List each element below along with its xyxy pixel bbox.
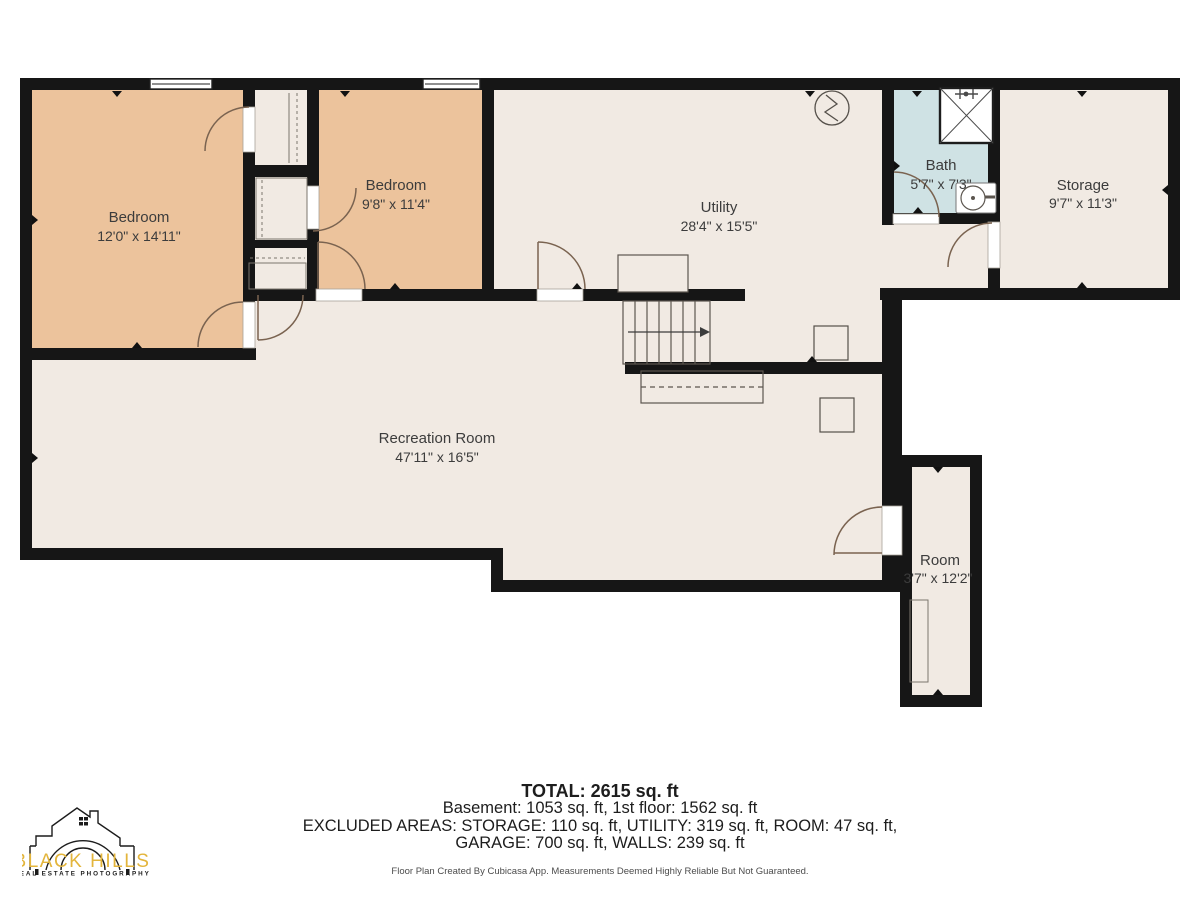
wall-right [1168, 78, 1180, 300]
wall-bath-left [882, 90, 894, 225]
room-dims-room: 3'7" x 12'2" [904, 570, 973, 586]
wall-closet-divider-1 [245, 165, 307, 177]
summary-floors: Basement: 1053 sq. ft, 1st floor: 1562 s… [0, 800, 1200, 818]
room-label-recreation: Recreation Room [379, 430, 496, 447]
summary-excluded-1: EXCLUDED AREAS: STORAGE: 110 sq. ft, UTI… [0, 818, 1200, 836]
room-dims-utility: 28'4" x 15'5" [681, 218, 758, 234]
summary-excluded-2: GARAGE: 700 sq. ft, WALLS: 239 sq. ft [0, 835, 1200, 853]
door-gap-room [882, 506, 902, 555]
door-gap-utility [537, 289, 583, 301]
disclaimer-text: Floor Plan Created By Cubicasa App. Meas… [0, 866, 1200, 877]
floor-plan-page: Bedroom 12'0" x 14'11" Bedroom 9'8" x 11… [0, 0, 1200, 900]
summary-total: TOTAL: 2615 sq. ft [0, 782, 1200, 800]
room-dims-storage: 9'7" x 11'3" [1049, 195, 1117, 211]
wall-storage-bottom [880, 288, 1180, 300]
logo-tagline-text: REAL ESTATE PHOTOGRAPHY [22, 871, 151, 878]
wall-bedroom1-bottom [20, 348, 256, 360]
room-label-room: Room [920, 552, 960, 569]
wall-rec-bottom-left [20, 548, 503, 560]
room-label-storage: Storage [1057, 177, 1110, 194]
logo-brand-text: BLACK HILLS [22, 851, 150, 872]
door-gap-bedroom1-upper [243, 107, 255, 152]
door-gap-bedroom2-closet [307, 186, 319, 229]
window-bedroom-2 [423, 79, 480, 89]
area-summary: TOTAL: 2615 sq. ft Basement: 1053 sq. ft… [0, 782, 1200, 853]
wall-room-bottom [900, 695, 982, 707]
wall-bedroom2-right [482, 78, 494, 301]
floor-fills [20, 78, 1180, 701]
wall-left [20, 78, 32, 560]
black-hills-logo: BLACK HILLS REAL ESTATE PHOTOGRAPHY [22, 798, 152, 880]
room-dims-bedroom-1: 12'0" x 14'11" [97, 228, 181, 244]
room-label-bedroom-2: Bedroom [366, 177, 427, 194]
room-label-bedroom-1: Bedroom [109, 209, 170, 226]
wall-closet-divider-2 [245, 240, 307, 248]
window-bedroom-1 [150, 79, 212, 89]
door-gap-bath [893, 214, 939, 224]
stair-landing [618, 255, 688, 292]
door-gap-bedroom1-lower [243, 302, 255, 348]
room-label-bath: Bath [926, 157, 957, 174]
door-gap-storage [988, 222, 1000, 268]
room-label-utility: Utility [701, 199, 738, 216]
wall-room-top [900, 455, 982, 467]
shower-icon [940, 88, 993, 143]
floor-plan-drawing: Bedroom 12'0" x 14'11" Bedroom 9'8" x 11… [0, 0, 1200, 760]
room-dims-bedroom-2: 9'8" x 11'4" [362, 196, 430, 212]
wall-rec-bottom-mid [491, 580, 902, 592]
room-dims-recreation: 47'11" x 16'5" [395, 449, 479, 465]
room-dims-bath: 5'7" x 7'3" [910, 176, 971, 192]
door-gap-bedroom2-entry [316, 289, 362, 301]
